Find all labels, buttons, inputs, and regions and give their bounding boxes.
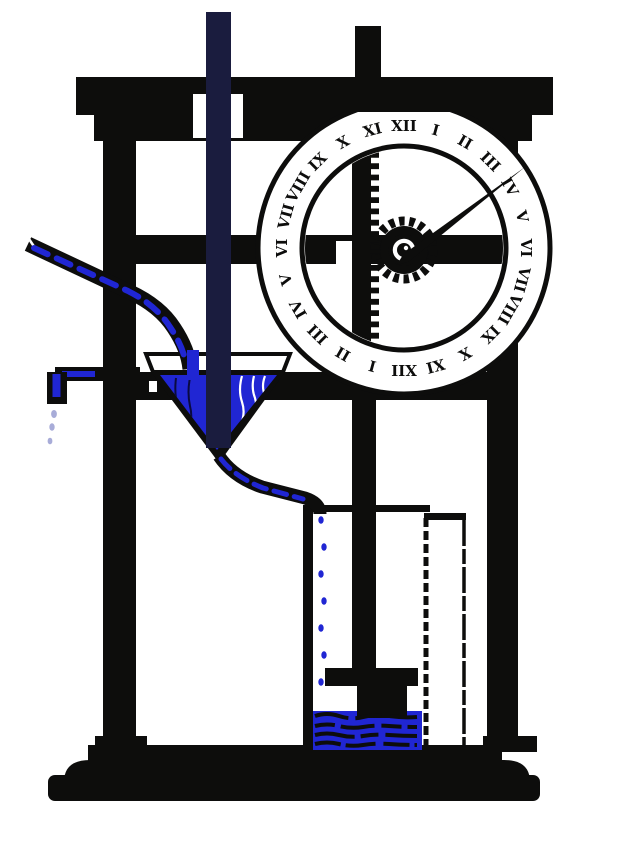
shelf-notch xyxy=(149,381,157,392)
dial-numeral: XII xyxy=(391,117,417,135)
pouring-stream xyxy=(187,350,199,380)
axle-highlight xyxy=(404,246,408,250)
spout-drip-icon xyxy=(49,423,54,430)
water-drop-icon xyxy=(318,570,323,578)
dial-numeral: XII xyxy=(391,361,417,379)
water-clock-illustration: XII I II III IV V VI VII VIII IX X XI XI… xyxy=(0,0,625,858)
top-beam-left-lip xyxy=(76,90,98,115)
right-stub-post xyxy=(355,26,381,92)
water-drop-icon xyxy=(318,624,323,632)
base-bottom-slab xyxy=(48,775,540,801)
spout-downpipe-water xyxy=(53,374,61,397)
spout-drip-icon xyxy=(51,410,57,418)
spout-drip-icon xyxy=(48,438,53,445)
toothed-rack-icon xyxy=(352,146,371,352)
water-drop-icon xyxy=(321,597,326,605)
cross-arm-notch xyxy=(336,241,352,264)
cylinder-back-rim xyxy=(424,513,466,520)
engraving-canvas: XII I II III IV V VI VII VIII IX X XI XI… xyxy=(0,0,625,858)
beam-slot xyxy=(231,94,243,138)
beam-slot xyxy=(193,94,206,138)
pedestal-base xyxy=(48,745,540,801)
float-rod xyxy=(352,396,376,678)
dial-numeral: VI xyxy=(517,238,535,258)
float-plate xyxy=(325,668,418,686)
water-drop-icon xyxy=(321,543,326,551)
top-beam-right-lip xyxy=(530,90,553,115)
water-drop-icon xyxy=(321,651,326,659)
dial-numeral: VI xyxy=(273,239,291,259)
float-block xyxy=(357,686,407,718)
top-beam-cap xyxy=(76,77,553,94)
cylinder-left-wall xyxy=(303,505,313,750)
water-drop-icon xyxy=(318,516,323,524)
water-drop-icon xyxy=(318,678,323,686)
center-post xyxy=(206,12,231,448)
left-post xyxy=(103,140,136,752)
